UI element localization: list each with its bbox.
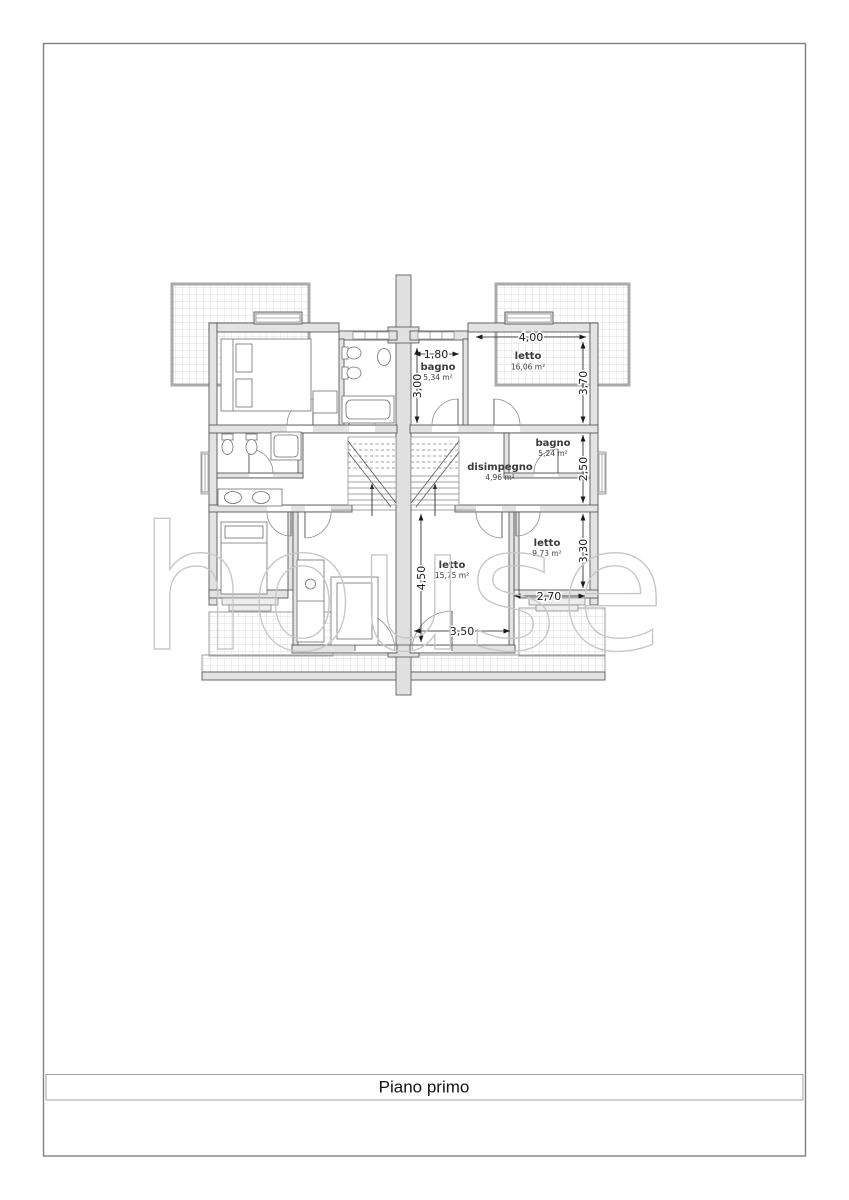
dimension-label: 1,80 [424,348,449,361]
watermark: house [139,489,668,690]
bidet [246,440,257,455]
bidet [347,367,361,379]
floor-plan-svg: Piano primo [0,0,849,1200]
dimension-label: 3,00 [411,374,424,399]
dimension-label: 3,70 [577,371,590,396]
sheet-title: Piano primo [379,1078,470,1097]
nightstand [313,391,337,413]
room-area: 16,06 m² [511,363,545,372]
window-icon [353,332,389,339]
drawing-sheet: Piano primo [0,0,849,1200]
room-area: 5,24 m² [538,449,567,458]
door-arc [494,399,520,425]
toilet [347,347,361,359]
room-name: letto [515,351,542,362]
bathtub [271,432,301,460]
double-bed [221,339,311,411]
pillow [236,379,252,407]
room-name: bagno [420,362,455,373]
sink [378,349,391,366]
dimension-label: 2,50 [577,457,590,482]
toilet [222,440,233,455]
dimension-label: 4,00 [519,331,544,344]
floor-plan: 4,00 3,70 1,80 3,00 2,50 3,30 2,70 4,50 … [139,275,668,695]
wall-segment [463,339,468,425]
pillow [236,344,252,372]
room-area: 5,34 m² [423,373,452,382]
room-name: bagno [535,438,570,449]
window-icon [418,332,454,339]
room-area: 4,96 m² [485,473,514,482]
room-name: disimpegno [467,462,533,473]
door-arc [432,399,458,425]
